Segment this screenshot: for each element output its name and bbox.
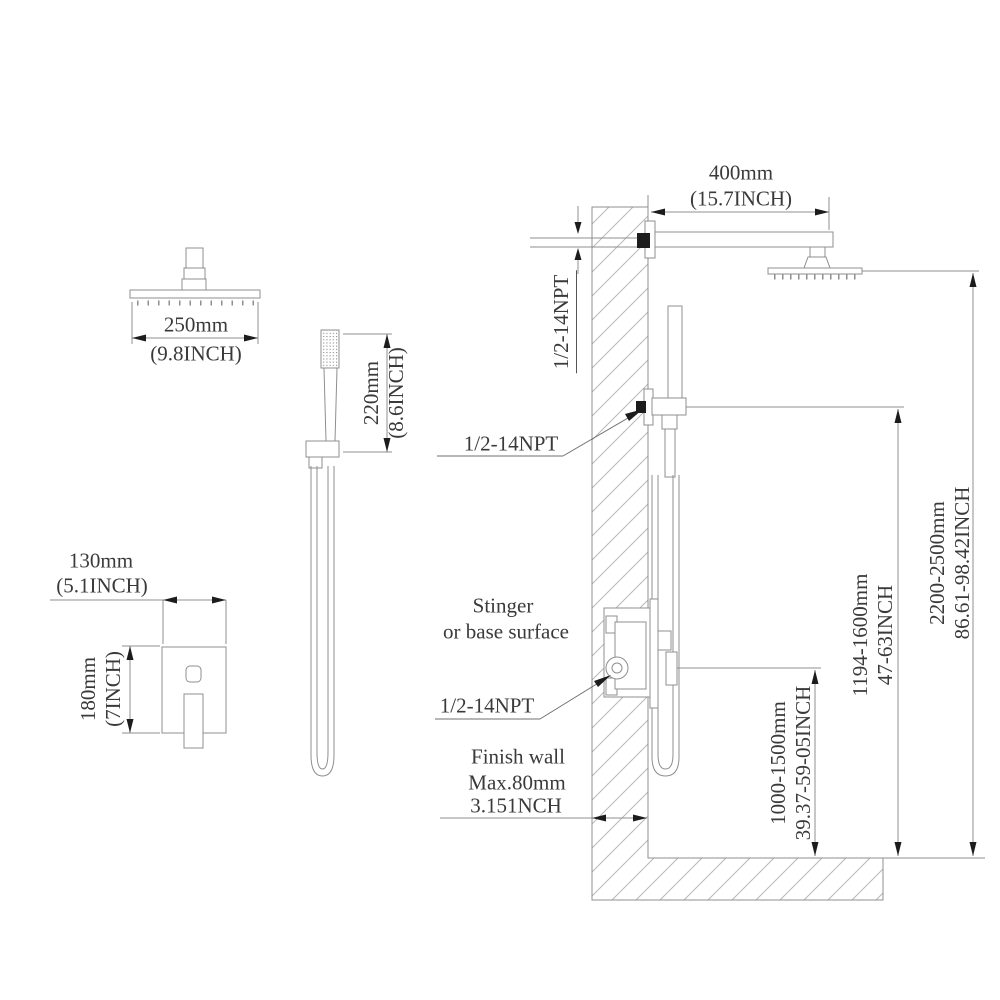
arm-length-mm-label: 400mm [709, 161, 773, 186]
npt-hand-label: 1/2-14NPT [464, 432, 559, 457]
head-height-mm: 2200-2500mm [925, 487, 950, 640]
finish-wall-line3: 3.151NCH [470, 794, 562, 819]
bar-height-inch: 47-63INCH [873, 574, 898, 697]
trim-height-mm: 180mm [76, 651, 101, 727]
valve-height-mm: 1000-1500mm [766, 686, 791, 841]
trim-height-inch: (7INCH) [101, 651, 126, 727]
head-height-label: 2200-2500mm 86.61-98.42INCH [925, 487, 975, 640]
finish-wall-line2: Max.80mm [468, 771, 565, 796]
overhead-width-mm-label: 250mm [164, 313, 228, 338]
dim-pipe-size [575, 206, 582, 274]
bar-height-mm: 1194-1600mm [848, 574, 873, 697]
bar-height-label: 1194-1600mm 47-63INCH [848, 574, 898, 697]
valve-height-label: 1000-1500mm 39.37-59-05INCH [766, 686, 816, 841]
finish-wall-line1: Finish wall [471, 745, 565, 770]
npt-valve-label: 1/2-14NPT [440, 694, 535, 719]
arm-length-inch-label: (15.7INCH) [690, 187, 792, 212]
hand-shower-height-mm: 220mm [359, 347, 384, 439]
hand-shower-height-label: 220mm (8.6INCH) [359, 347, 409, 439]
trim-width-mm-label: 130mm [69, 549, 133, 574]
shower-installation-diagram: 250mm (9.8INCH) 220mm (8.6INCH) 130mm (5… [0, 0, 1000, 1000]
valve-height-inch: 39.37-59-05INCH [791, 686, 816, 841]
diagram-linework [0, 0, 1000, 1000]
surface-label-line2: or base surface [443, 620, 569, 645]
npt-fitting-arm [637, 233, 650, 248]
overhead-width-inch-label: (9.8INCH) [150, 342, 242, 367]
head-height-inch: 86.61-98.42INCH [950, 487, 975, 640]
surface-label-line1: Stinger [473, 594, 534, 619]
hand-shower-height-inch: (8.6INCH) [384, 347, 409, 439]
npt-arm-text: 1/2-14NPT [549, 271, 577, 374]
npt-arm-label: 1/2-14NPT [549, 271, 577, 374]
trim-height-label: 180mm (7INCH) [76, 651, 126, 727]
trim-width-inch-label: (5.1INCH) [56, 574, 148, 599]
